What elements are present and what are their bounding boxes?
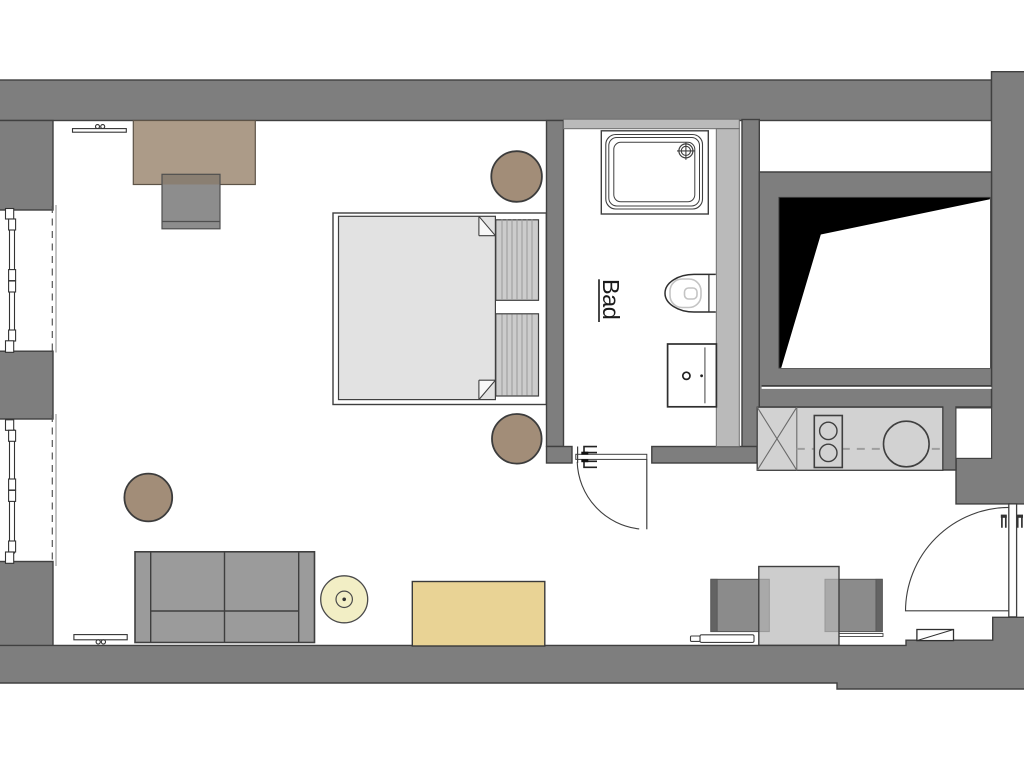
svg-text:Bad: Bad bbox=[598, 279, 624, 319]
